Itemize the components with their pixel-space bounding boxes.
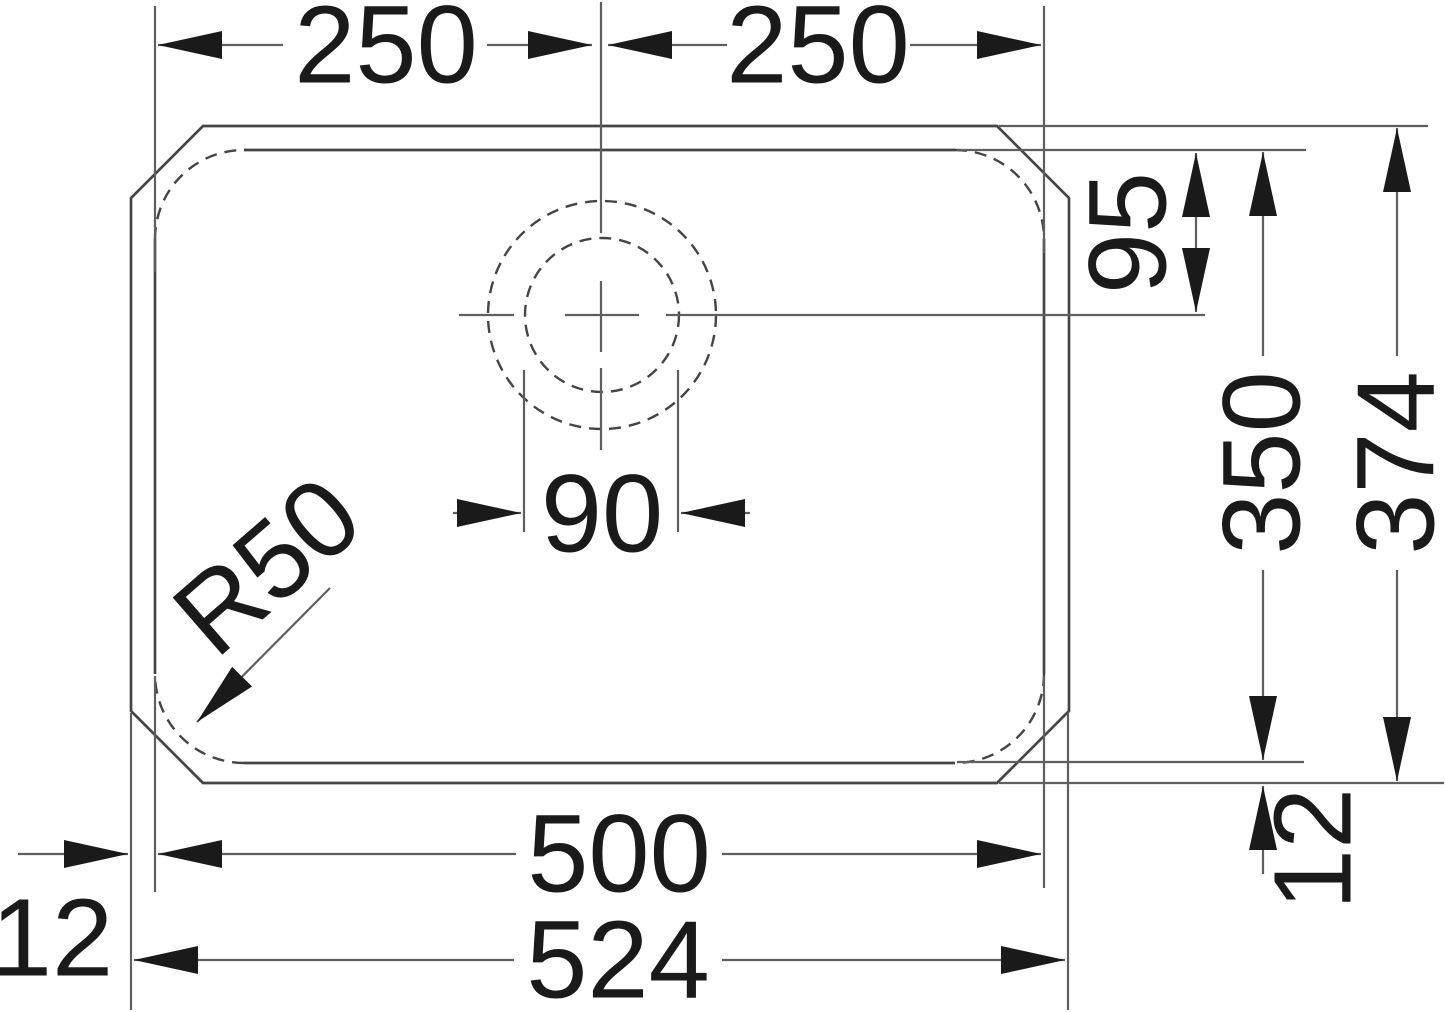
dimension-500: 500 xyxy=(158,793,1041,916)
dimension-250-left: 250 xyxy=(158,0,592,107)
dimension-90: 90 xyxy=(453,453,750,576)
dimension-12-right: 12 xyxy=(1252,786,1375,910)
dimension-350: 350 xyxy=(1201,152,1324,760)
dimension-374: 374 xyxy=(1335,128,1445,781)
dim-label-350: 350 xyxy=(1201,371,1324,555)
dim-label-250-right: 250 xyxy=(726,0,910,107)
dimension-95: 95 xyxy=(1067,153,1197,312)
dimension-12-left: 12 xyxy=(0,854,128,1000)
dimension-250-right: 250 xyxy=(608,0,1041,107)
dim-label-524: 524 xyxy=(526,899,710,1012)
bowl-corner-arc-top-right xyxy=(955,150,1044,239)
dim-label-r50: R50 xyxy=(151,453,384,678)
dim-label-95: 95 xyxy=(1067,172,1190,294)
bowl-corner-arc-top-left xyxy=(155,150,244,239)
dim-label-12-left: 12 xyxy=(0,877,113,1000)
dimension-r50: R50 xyxy=(151,453,384,722)
drawing-canvas: 250 250 95 90 R50 350 374 12 500 xyxy=(0,0,1445,1012)
dimension-524: 524 xyxy=(134,899,1065,1012)
dim-label-12-right: 12 xyxy=(1252,788,1375,910)
dim-label-90: 90 xyxy=(541,453,663,576)
dim-label-250-left: 250 xyxy=(294,0,478,107)
dim-label-374: 374 xyxy=(1335,371,1445,555)
dim-label-500: 500 xyxy=(527,793,711,916)
sink-dimension-drawing: 250 250 95 90 R50 350 374 12 500 xyxy=(0,0,1445,1012)
